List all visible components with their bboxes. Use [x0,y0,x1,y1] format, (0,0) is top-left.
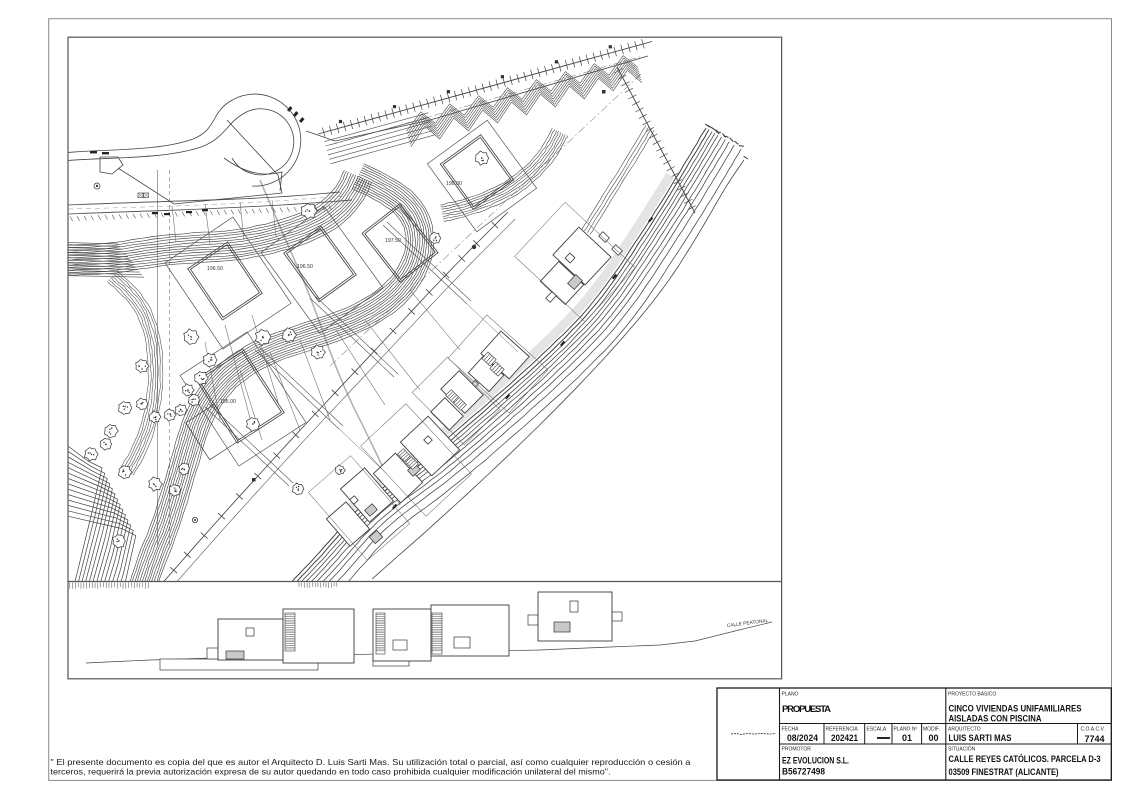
svg-text:195.00: 195.00 [220,399,236,405]
svg-text:197.50: 197.50 [385,238,401,244]
svg-text:PLANO Nº: PLANO Nº [894,727,918,733]
svg-text:PROPUESTA: PROPUESTA [782,704,831,715]
svg-text:08/2024: 08/2024 [787,733,818,743]
svg-text:FECHA: FECHA [782,727,800,733]
svg-text:202421: 202421 [831,733,858,743]
svg-text:SITUACIÓN: SITUACIÓN [948,746,976,753]
svg-text:MODIF.: MODIF. [923,727,940,733]
svg-text:196.50: 196.50 [207,266,223,272]
svg-text:PROMOTOR: PROMOTOR [782,747,812,753]
svg-text:REFERENCIA: REFERENCIA [826,727,859,733]
svg-text:PLANO: PLANO [782,692,799,698]
svg-text:terceros, requerirá la previa: terceros, requerirá la previa autorizaci… [51,767,611,777]
svg-text:ARQUITECTO: ARQUITECTO [948,727,981,733]
svg-text:B56727498: B56727498 [782,767,825,777]
svg-text:00: 00 [928,733,938,743]
svg-text:" El presente documento es cop: " El presente documento es copia del que… [51,757,691,767]
svg-text:EZ EVOLUCION S.L.: EZ EVOLUCION S.L. [782,756,849,766]
svg-text:196.50: 196.50 [297,264,313,270]
svg-text:03509 FINESTRAT (ALICANTE): 03509 FINESTRAT (ALICANTE) [949,767,1059,778]
svg-text:LUIS SARTI MAS: LUIS SARTI MAS [949,733,1012,743]
svg-text:C.O.A.C.V.: C.O.A.C.V. [1081,727,1105,733]
svg-text:ESCALA: ESCALA [867,727,887,733]
svg-text:01: 01 [902,733,912,743]
svg-text:7744: 7744 [1084,734,1104,744]
svg-text:199.00: 199.00 [446,181,462,187]
svg-text:PROYECTO BÁSICO: PROYECTO BÁSICO [948,691,996,698]
svg-text:CALLE REYES CATÓLICOS. PARCELA: CALLE REYES CATÓLICOS. PARCELA D-3 [949,753,1101,765]
svg-text:AISLADAS CON PISCINA: AISLADAS CON PISCINA [949,714,1042,725]
